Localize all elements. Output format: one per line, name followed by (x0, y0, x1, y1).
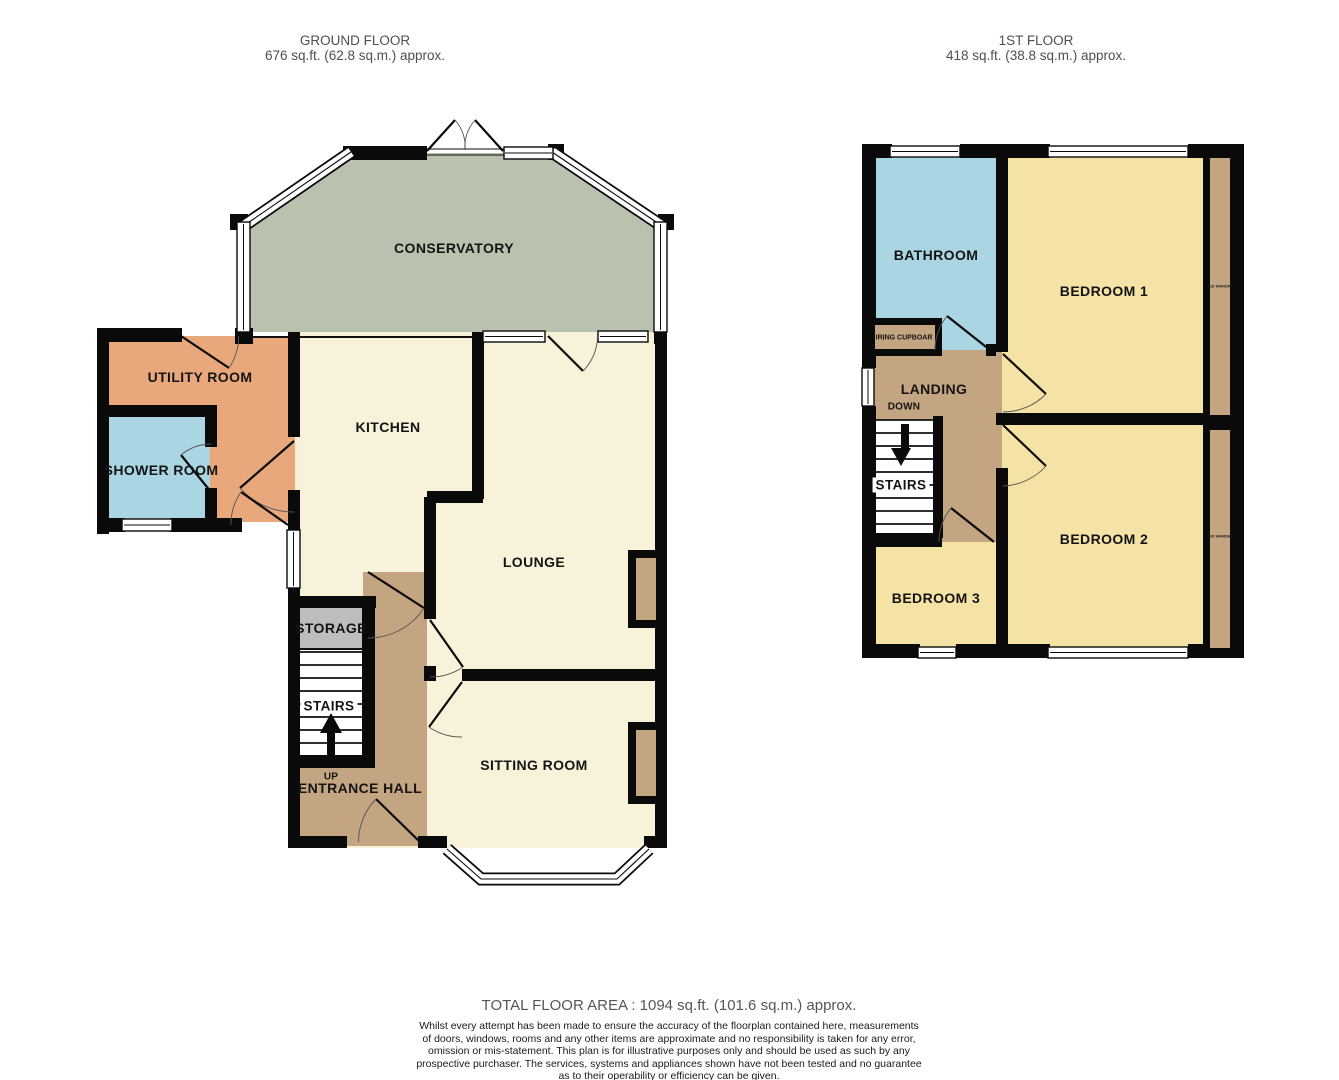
room-label-shower: SHOWER ROOM (104, 462, 219, 478)
footer: TOTAL FLOOR AREA : 1094 sq.ft. (101.6 sq… (219, 997, 1119, 1080)
room-label-bedroom3: BEDROOM 3 (892, 590, 980, 606)
fitted-wardrobes (1203, 152, 1237, 654)
floorplan-page: GROUND FLOOR 676 sq.ft. (62.8 sq.m.) app… (0, 0, 1339, 1080)
room-label-bathroom: BATHROOM (894, 247, 979, 263)
ground-floor-area: 676 sq.ft. (62.8 sq.m.) approx. (265, 48, 445, 63)
room-label-lounge: LOUNGE (503, 554, 565, 570)
room-label-landing: LANDING (901, 381, 968, 397)
first-floor-header: 1ST FLOOR 418 sq.ft. (38.8 sq.m.) approx… (946, 33, 1126, 63)
disclaimer-line: prospective purchaser. The services, sys… (219, 1058, 1119, 1071)
first-floor-area: 418 sq.ft. (38.8 sq.m.) approx. (946, 48, 1126, 63)
first-floor-title: 1ST FLOOR (946, 33, 1126, 48)
label-wardrobe-1: FITTED WARDROBE (1208, 284, 1232, 289)
ground-floor-title: GROUND FLOOR (265, 33, 445, 48)
room-label-conservatory: CONSERVATORY (394, 240, 514, 256)
room-label-ground-stairs: STAIRS (301, 699, 358, 714)
total-floor-area: TOTAL FLOOR AREA : 1094 sq.ft. (101.6 sq… (219, 997, 1119, 1014)
disclaimer-line: as to their operability or efficiency ca… (219, 1070, 1119, 1080)
room-label-sitting: SITTING ROOM (480, 757, 587, 773)
room-label-utility: UTILITY ROOM (148, 369, 253, 385)
disclaimer-line: omission or mis-statement. This plan is … (219, 1045, 1119, 1058)
ground-floor-header: GROUND FLOOR 676 sq.ft. (62.8 sq.m.) app… (265, 33, 445, 63)
label-wardrobe-2: FITTED WARDROBE (1208, 534, 1232, 539)
room-label-hall: ENTRANCE HALL (298, 780, 422, 796)
room-label-storage: STORAGE (295, 620, 367, 636)
room-label-airing-cupboard: AIRING CUPBOARD (876, 335, 932, 342)
room-label-bedroom1: BEDROOM 1 (1060, 283, 1148, 299)
bay-window (447, 849, 649, 879)
disclaimer-line: Whilst every attempt has been made to en… (219, 1020, 1119, 1033)
label-down: DOWN (888, 402, 920, 413)
room-label-kitchen: KITCHEN (355, 419, 420, 435)
disclaimer-line: of doors, windows, rooms and any other i… (219, 1033, 1119, 1046)
room-label-bedroom2: BEDROOM 2 (1060, 531, 1148, 547)
room-label-first-stairs: STAIRS (873, 478, 930, 493)
